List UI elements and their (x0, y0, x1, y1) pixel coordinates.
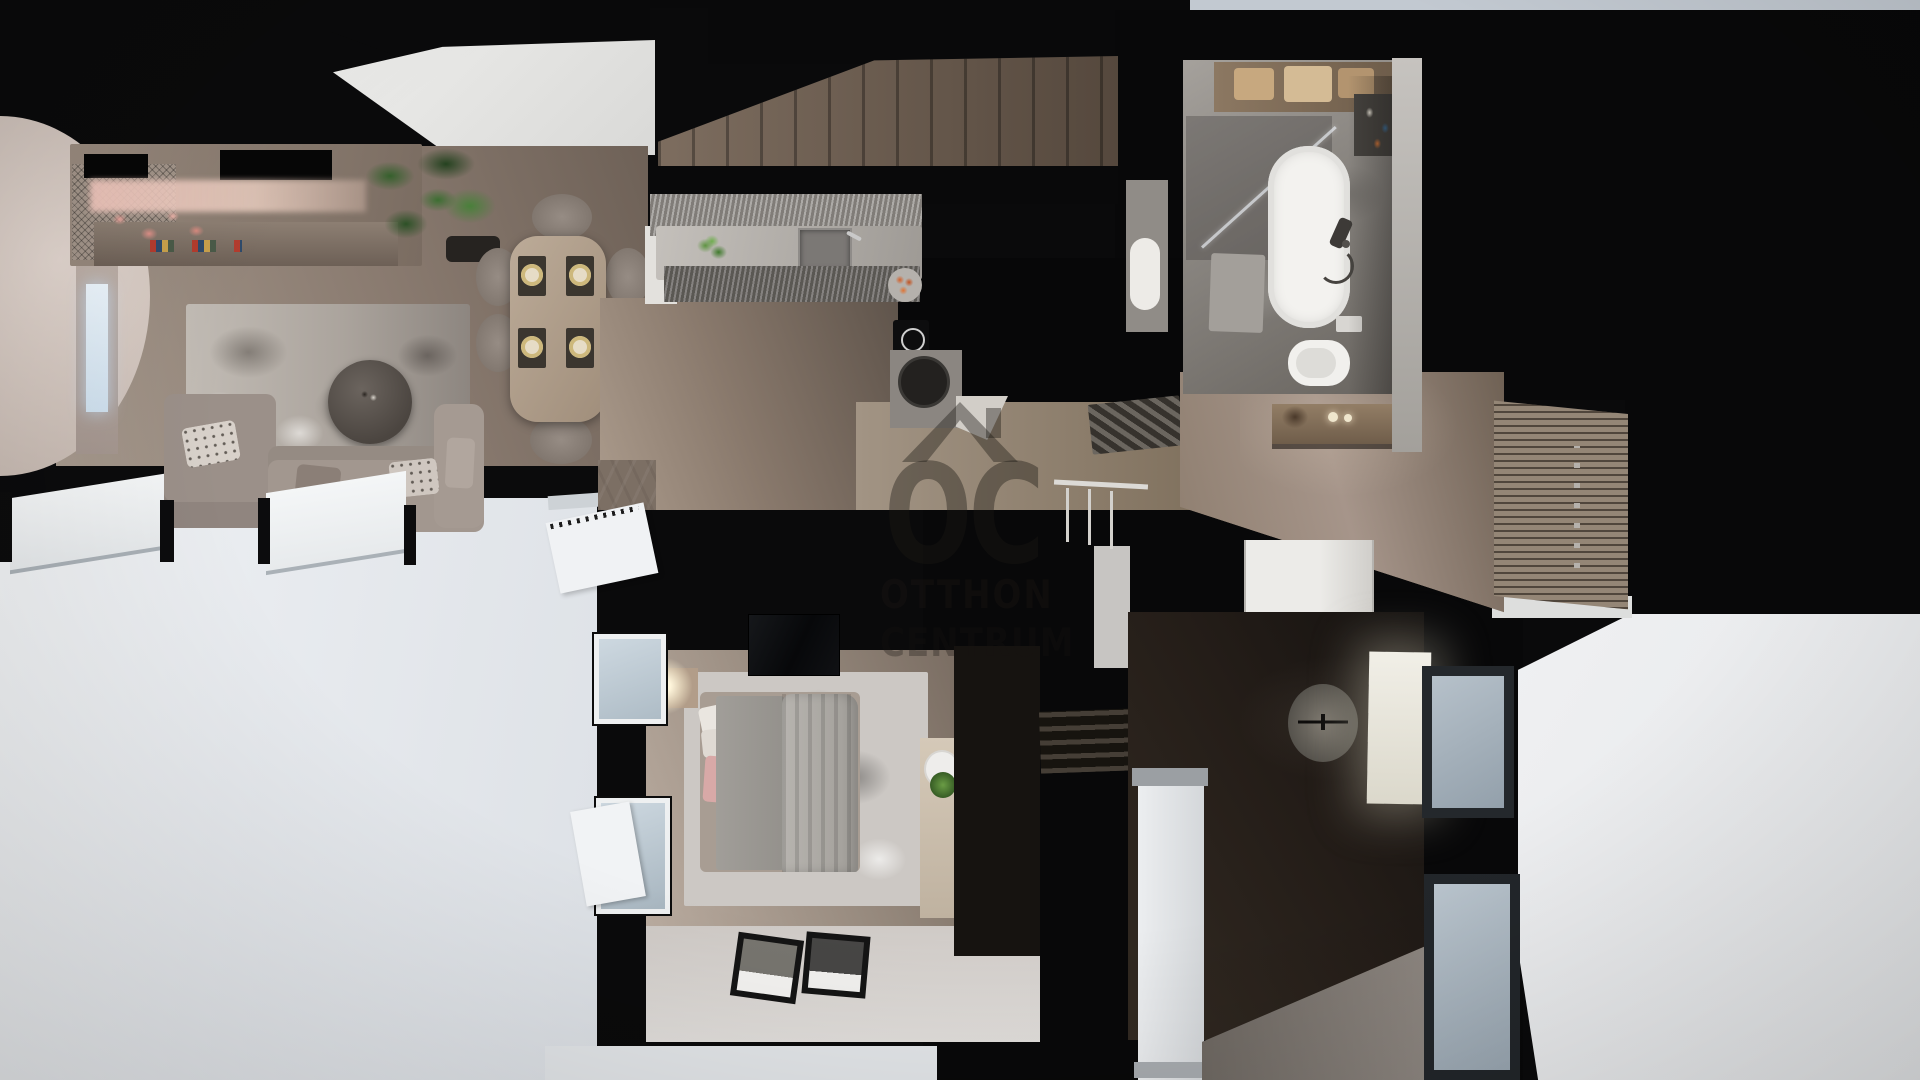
plate-1 (521, 264, 543, 286)
tv-screen-large (220, 150, 332, 180)
railing-post-1 (1066, 488, 1069, 542)
picture-photo-1 (737, 938, 798, 997)
tv-screen-small (84, 154, 148, 178)
staircase-down-treads (1039, 708, 1137, 773)
slatted-wardrobe (1494, 394, 1628, 616)
corridor-floor (598, 460, 656, 510)
watermark-line1: OTTHON (880, 576, 1054, 615)
throw-pillow-4 (445, 437, 476, 488)
window-jamb-2 (160, 500, 174, 562)
dining-chair-bottom (530, 416, 592, 464)
bedroom-dark-wardrobe (954, 646, 1040, 956)
bed-blanket-flat (716, 696, 784, 870)
wall-white-wedge (333, 40, 655, 155)
washbasin (1130, 238, 1160, 310)
duvet-folds (782, 694, 858, 872)
railing-post-2 (1088, 489, 1091, 545)
wall-hung-toilet (1288, 340, 1350, 386)
cooktop-ring-1 (901, 328, 925, 352)
desk-plant (930, 772, 956, 798)
structural-column (1138, 776, 1204, 1080)
plate-2 (569, 264, 591, 286)
towel-2 (1284, 66, 1332, 102)
console-lamp-2 (1344, 414, 1352, 422)
window-jamb-4 (404, 505, 416, 565)
railing-post-3 (1110, 491, 1113, 549)
picture-photo-2 (808, 938, 864, 992)
console-lamp-1 (1328, 412, 1338, 422)
terrace-right (1518, 614, 1920, 1080)
wall-pillar (1392, 58, 1422, 452)
chair-base-cross (1298, 714, 1348, 730)
column-cap-bottom (1134, 1062, 1208, 1078)
flower-decor (96, 196, 214, 254)
watermark-line2: CENTRUM (880, 624, 1074, 663)
wardrobe-knobs (1574, 446, 1580, 568)
roof-mass-top-left (0, 0, 345, 138)
console-branch-decor (1282, 406, 1308, 428)
dining-chair-top (532, 194, 592, 240)
window-jamb-3 (258, 498, 270, 564)
bedroom-wall-tv (748, 614, 840, 676)
terrace-left (0, 498, 597, 1080)
fireplace-screen (86, 284, 108, 412)
picture-frame-2 (801, 931, 870, 998)
column-cap-top (1132, 768, 1208, 786)
stair-treads (658, 56, 1118, 166)
striped-doormat (1088, 395, 1185, 454)
plate-3 (521, 336, 543, 358)
entry-closet (1244, 540, 1374, 618)
watermark-monogram: OC (884, 446, 1041, 583)
toilet-seat (1296, 348, 1336, 378)
lower-fluted-cabinets (664, 266, 920, 302)
window-jamb-1 (0, 492, 12, 562)
roof-mass-right (1625, 392, 1920, 624)
bedroom-window-1 (594, 634, 666, 724)
staircase-up (658, 56, 1118, 166)
stairwell-panel (1094, 546, 1130, 668)
study-window-2 (1424, 874, 1520, 1080)
office-chair (1288, 684, 1358, 762)
picture-frame-1 (730, 932, 804, 1005)
table-decor (358, 388, 380, 404)
plate-4 (569, 336, 591, 358)
round-basin (898, 356, 950, 408)
study-window-1 (1422, 666, 1514, 818)
terrace-bottom-strip (545, 1046, 937, 1080)
bath-mat (1209, 253, 1266, 333)
towel-1 (1234, 68, 1274, 100)
floorplan-render: OC OTTHON CENTRUM (0, 0, 1920, 1080)
bed-duvet-draped (782, 694, 858, 872)
fruit-bowl (888, 268, 922, 302)
